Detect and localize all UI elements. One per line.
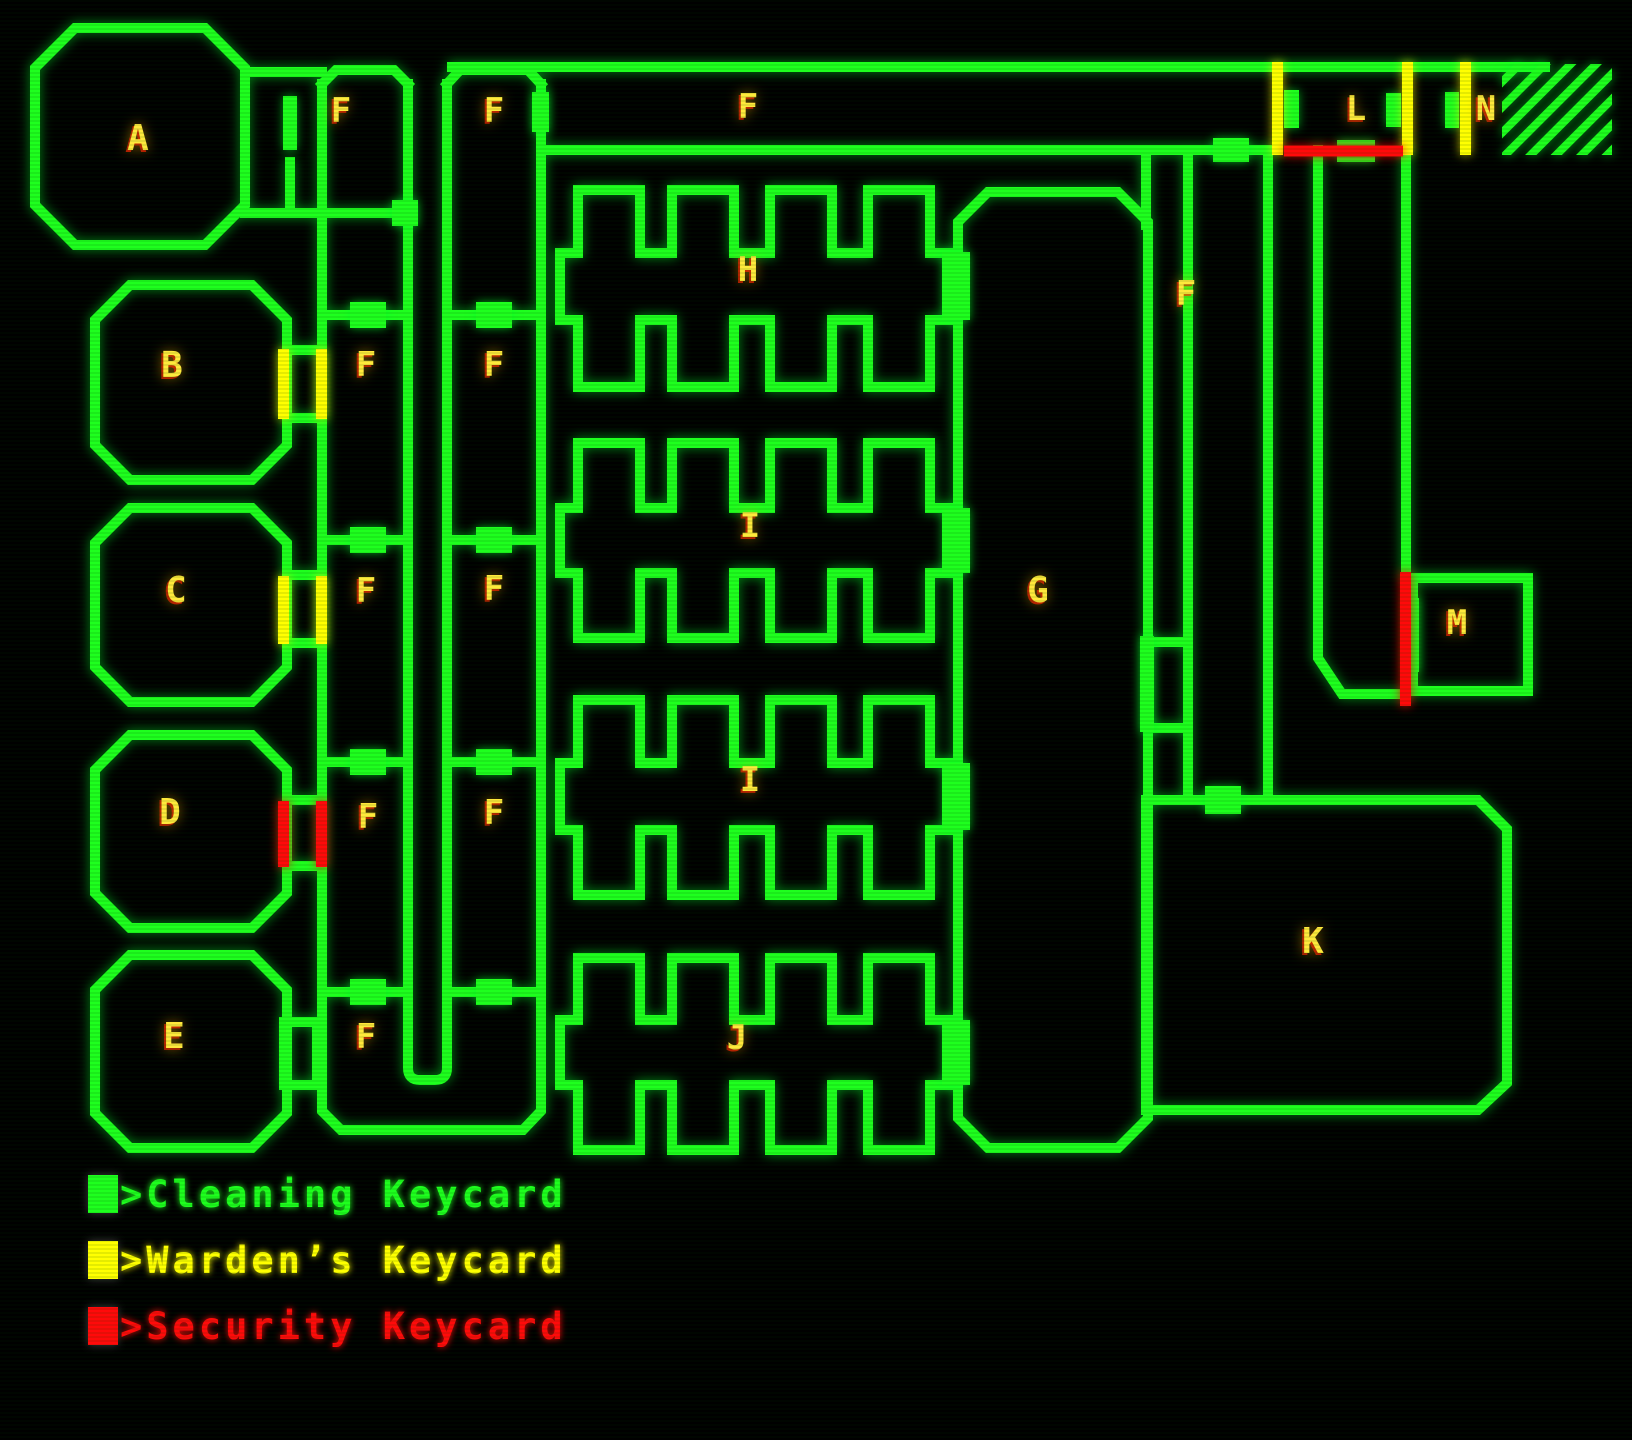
corridor1-top-cap [322, 70, 408, 84]
room-k-outline [1146, 800, 1507, 1110]
warden-door-icon [278, 349, 289, 419]
room-label-i: I [740, 760, 760, 800]
door-icon [476, 302, 512, 328]
legend-row-warden: >Warden’s Keycard [88, 1238, 567, 1282]
room-label-i: I [740, 506, 760, 546]
room-b-outline [95, 285, 287, 480]
corridor-inner-u [408, 84, 447, 1080]
room-label-k: K [1302, 921, 1324, 962]
room-label-m: M [1447, 603, 1467, 643]
right-corridor-walls [1146, 150, 1268, 798]
prison-map-screen: A B C D E F F F F F F F F F F F H I I J … [0, 0, 1632, 1440]
security-door-icon [278, 801, 289, 867]
corridor2-top-cap [447, 70, 541, 84]
warden-door-icon [316, 349, 327, 419]
door-icon [350, 302, 386, 328]
room-m-outline [1413, 578, 1528, 691]
corridor-label-f: F [484, 91, 504, 131]
corridor-label-f: F [484, 569, 504, 609]
door-icon [942, 508, 970, 573]
room-label-l: L [1346, 89, 1366, 129]
warden-keycard-swatch-icon [88, 1241, 118, 1279]
door-icon [350, 979, 386, 1005]
legend-label-warden: >Warden’s Keycard [120, 1239, 567, 1282]
door-icon [942, 1020, 970, 1085]
map-walls [35, 28, 1545, 1150]
room-label-h: H [738, 250, 758, 290]
door-icon [1140, 636, 1154, 732]
door-icon [1213, 138, 1249, 162]
corridor-to-m [1318, 150, 1406, 694]
door-icon [942, 252, 970, 320]
security-door-icon [316, 801, 327, 867]
room-label-d: D [159, 792, 181, 833]
warden-door-icon [316, 576, 327, 644]
door-icon [476, 527, 512, 553]
cellblock-j [560, 958, 952, 1150]
room-e-outline [95, 955, 287, 1148]
room-label-g: G [1027, 570, 1049, 611]
door-icon [476, 749, 512, 775]
corridor-label-f: F [484, 345, 504, 385]
room-g-outline [958, 192, 1148, 1148]
corridor-label-f: F [738, 87, 758, 127]
room-label-b: B [161, 345, 183, 386]
corridor-label-f: F [331, 91, 351, 131]
corridor-label-f: F [356, 1017, 376, 1057]
corridor-label-f: F [1176, 274, 1196, 314]
room-label-j: J [727, 1018, 747, 1058]
warden-door-icon [1402, 62, 1413, 155]
room-label-e: E [163, 1016, 185, 1057]
door-icon [1445, 92, 1459, 128]
room-c-outline [95, 508, 287, 702]
warden-door-icon [1460, 62, 1471, 155]
corridor-label-f: F [484, 793, 504, 833]
legend-label-cleaning: >Cleaning Keycard [120, 1173, 567, 1216]
room-d-outline [95, 735, 287, 928]
restricted-hatch-area [1502, 64, 1612, 155]
top-corridor [452, 67, 1545, 150]
room-label-n: N [1476, 89, 1496, 129]
door-icon [283, 96, 297, 150]
corridor-label-f: F [358, 797, 378, 837]
door-icon [1205, 786, 1241, 814]
legend-label-security: >Security Keycard [120, 1305, 567, 1348]
door-icon [1386, 93, 1401, 127]
room-label-c: C [165, 570, 187, 611]
warden-door-icon [1272, 62, 1283, 155]
door-icon [942, 763, 970, 830]
legend-row-security: >Security Keycard [88, 1304, 567, 1348]
keycard-legend: >Cleaning Keycard >Warden’s Keycard >Sec… [88, 1172, 567, 1370]
corridor-label-f: F [356, 345, 376, 385]
security-door-icon [1400, 572, 1411, 706]
room-label-a: A [127, 118, 149, 159]
corridor-label-f: F [356, 571, 376, 611]
door-icon [532, 92, 549, 132]
warden-door-icon [278, 576, 289, 644]
door-icon [350, 527, 386, 553]
legend-row-cleaning: >Cleaning Keycard [88, 1172, 567, 1216]
door-icon [350, 749, 386, 775]
door-icon [392, 200, 418, 226]
cleaning-keycard-swatch-icon [88, 1175, 118, 1213]
door-icon [1284, 90, 1299, 128]
door-icon [476, 979, 512, 1005]
security-keycard-swatch-icon [88, 1307, 118, 1345]
map-labels: A B C D E F F F F F F F F F F F H I I J … [127, 87, 1496, 1058]
